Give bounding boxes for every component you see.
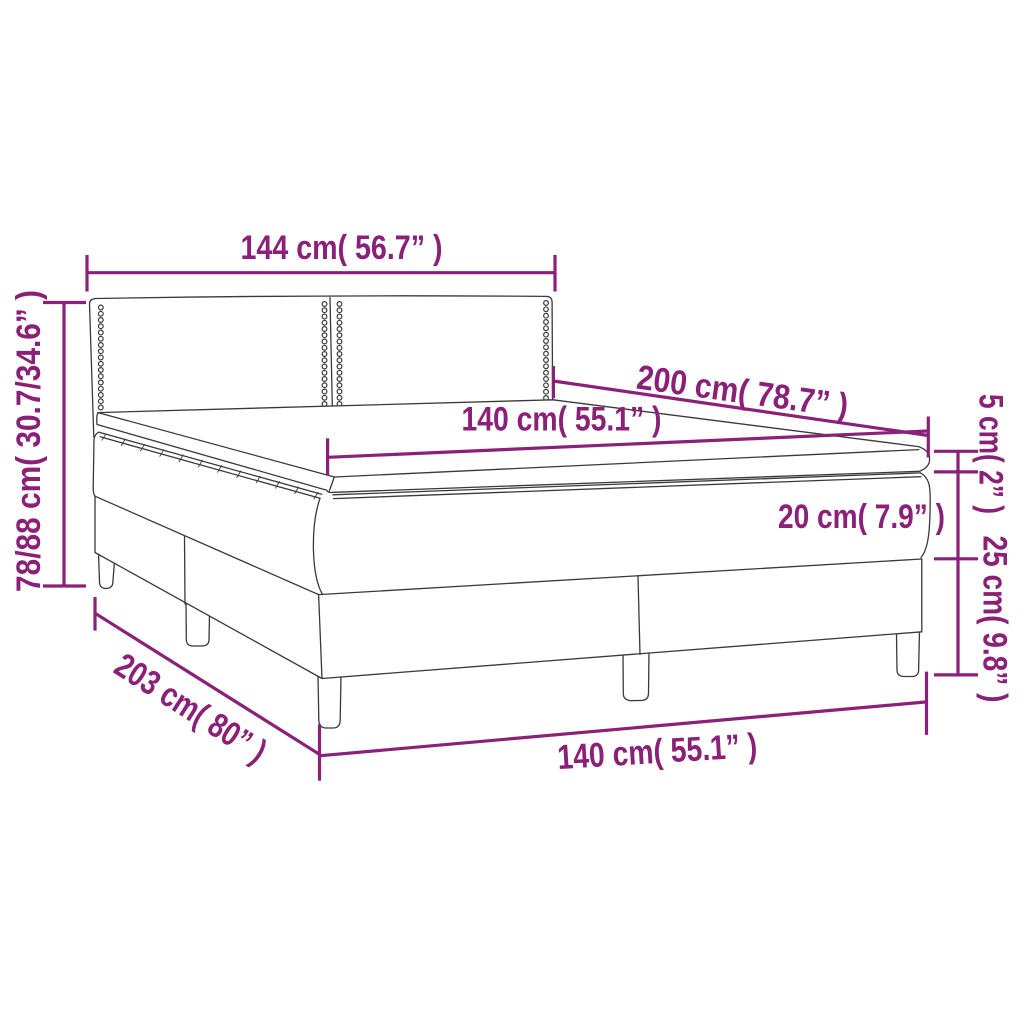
- svg-text:78/88 cm( 30.7/34.6” ): 78/88 cm( 30.7/34.6” ): [10, 290, 48, 592]
- svg-text:144 cm( 56.7” ): 144 cm( 56.7” ): [241, 229, 443, 267]
- svg-text:5 cm( 2” ): 5 cm( 2” ): [972, 394, 1010, 514]
- svg-text:140 cm( 55.1” ): 140 cm( 55.1” ): [462, 401, 662, 439]
- svg-text:25 cm( 9.8” ): 25 cm( 9.8” ): [976, 536, 1014, 703]
- svg-text:20 cm( 7.9” ): 20 cm( 7.9” ): [778, 498, 945, 536]
